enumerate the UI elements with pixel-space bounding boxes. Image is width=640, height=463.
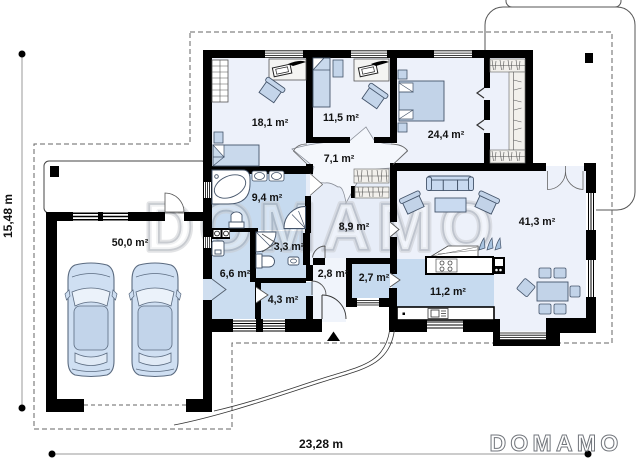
svg-text:18,1 m²: 18,1 m² <box>252 117 289 129</box>
svg-text:7,1 m²: 7,1 m² <box>324 153 355 165</box>
svg-text:15,48 m: 15,48 m <box>1 194 15 238</box>
svg-text:4,3 m²: 4,3 m² <box>268 294 299 306</box>
svg-text:23,28 m: 23,28 m <box>299 437 343 451</box>
svg-text:DOMAMO: DOMAMO <box>489 430 622 456</box>
svg-text:2,8 m²: 2,8 m² <box>318 268 349 280</box>
svg-text:24,4 m²: 24,4 m² <box>428 129 465 141</box>
svg-text:9,4 m²: 9,4 m² <box>252 192 283 204</box>
svg-text:8,9 m²: 8,9 m² <box>339 221 370 233</box>
svg-text:11,2 m²: 11,2 m² <box>430 286 466 298</box>
svg-text:6,6 m²: 6,6 m² <box>220 268 251 280</box>
svg-text:50,0 m²: 50,0 m² <box>112 237 149 249</box>
svg-text:3,3 m²: 3,3 m² <box>274 241 305 253</box>
svg-text:11,5 m²: 11,5 m² <box>323 112 359 124</box>
svg-text:41,3 m²: 41,3 m² <box>519 216 556 228</box>
svg-text:2,7 m²: 2,7 m² <box>359 272 390 284</box>
